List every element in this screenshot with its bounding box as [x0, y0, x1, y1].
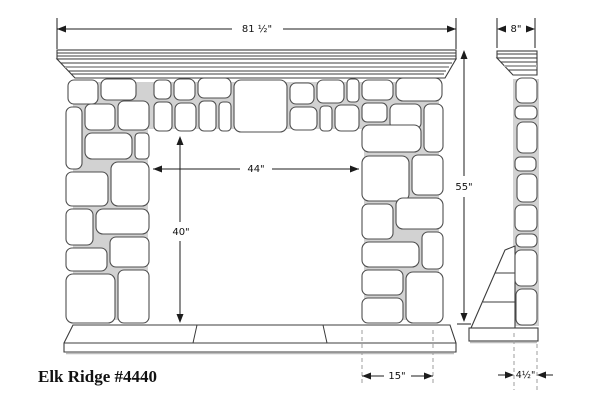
stone [515, 250, 537, 286]
stone [362, 125, 421, 152]
stone [362, 156, 409, 201]
stone [362, 270, 403, 295]
stone [320, 106, 332, 131]
stone [66, 274, 115, 323]
side-buttress-wedge [471, 246, 515, 328]
stone [396, 198, 443, 229]
stone [66, 248, 107, 271]
overall-height-label: 55" [455, 182, 472, 193]
arrowhead-down-icon [177, 314, 184, 323]
stone [118, 270, 149, 323]
arrowhead-left-icon [537, 372, 546, 379]
arrowhead-right-icon [424, 373, 433, 380]
stone [317, 80, 344, 103]
arrowhead-left-icon [362, 373, 371, 380]
stone [234, 80, 287, 132]
stone [110, 237, 149, 267]
leg-base-width-label: 15" [388, 371, 405, 382]
arrowhead-left-icon [153, 166, 162, 173]
stone [66, 172, 108, 206]
stone [424, 104, 443, 152]
stone [68, 80, 98, 104]
opening-width-label: 44" [247, 164, 264, 175]
product-model-label: Elk Ridge #4440 [38, 367, 157, 386]
stone [515, 205, 537, 231]
stone [85, 104, 115, 130]
stone [219, 102, 231, 131]
fireplace-spec-sheet: 81 ½" 8" 44" 40" 55" [0, 0, 600, 400]
stone [517, 122, 537, 153]
arrowhead-right-icon [350, 166, 359, 173]
stone [516, 234, 537, 247]
stone [174, 79, 195, 100]
right-leg-stones [362, 78, 443, 323]
fireplace-diagram: 81 ½" 8" 44" 40" 55" [0, 0, 600, 400]
stone [362, 204, 393, 239]
mantel-crown [57, 59, 456, 78]
dim-overall-height: 55" [455, 50, 472, 324]
dim-opening-width: 44" [153, 164, 359, 175]
stone [362, 298, 403, 323]
stone [396, 78, 442, 101]
stone [96, 209, 149, 234]
stone [516, 289, 537, 325]
arrowhead-right-icon [526, 26, 535, 33]
stone [412, 155, 443, 195]
stone [111, 162, 149, 206]
front-view [57, 50, 456, 354]
arrowhead-left-icon [497, 26, 506, 33]
side-base [469, 328, 538, 343]
stone [66, 209, 93, 245]
stone [290, 107, 317, 130]
stone [101, 79, 136, 100]
stone [515, 157, 536, 171]
overall-width-label: 81 ½" [242, 23, 272, 35]
hearth [64, 325, 456, 354]
dim-opening-height: 40" [172, 136, 189, 323]
stone [362, 242, 419, 267]
arrowhead-right-icon [447, 26, 456, 33]
arrowhead-right-icon [505, 372, 514, 379]
stone [422, 232, 443, 269]
left-leg-stones [66, 79, 149, 323]
stone [85, 133, 132, 159]
stone [362, 80, 393, 100]
mantel-depth-label: 8" [511, 24, 522, 35]
arrowhead-left-icon [57, 26, 66, 33]
opening-height-label: 40" [172, 227, 189, 238]
arrowhead-up-icon [461, 50, 468, 59]
stone [406, 272, 443, 323]
side-view [469, 51, 539, 343]
dim-mantel-depth: 8" [497, 18, 535, 48]
mantel-top-slab [57, 50, 456, 59]
stone [335, 105, 359, 131]
arrowhead-down-icon [461, 313, 468, 322]
stone [198, 78, 231, 98]
stone [517, 174, 537, 202]
arrowhead-up-icon [177, 136, 184, 145]
stone [290, 83, 314, 104]
dim-overall-width: 81 ½" [57, 18, 456, 49]
stone [154, 102, 172, 131]
stone [347, 79, 359, 102]
stone [199, 101, 216, 131]
side-base-depth-label: 4½" [516, 370, 536, 381]
stone [362, 103, 387, 122]
stone [516, 78, 537, 103]
side-cap [497, 51, 537, 75]
side-base-slab [469, 328, 538, 341]
stone [175, 103, 196, 131]
stone [66, 107, 82, 169]
mantel-shelf [57, 50, 456, 78]
stone [118, 101, 149, 130]
stone [515, 106, 537, 119]
hearth-slab [64, 325, 456, 352]
stone [154, 80, 171, 99]
stone [135, 133, 149, 159]
